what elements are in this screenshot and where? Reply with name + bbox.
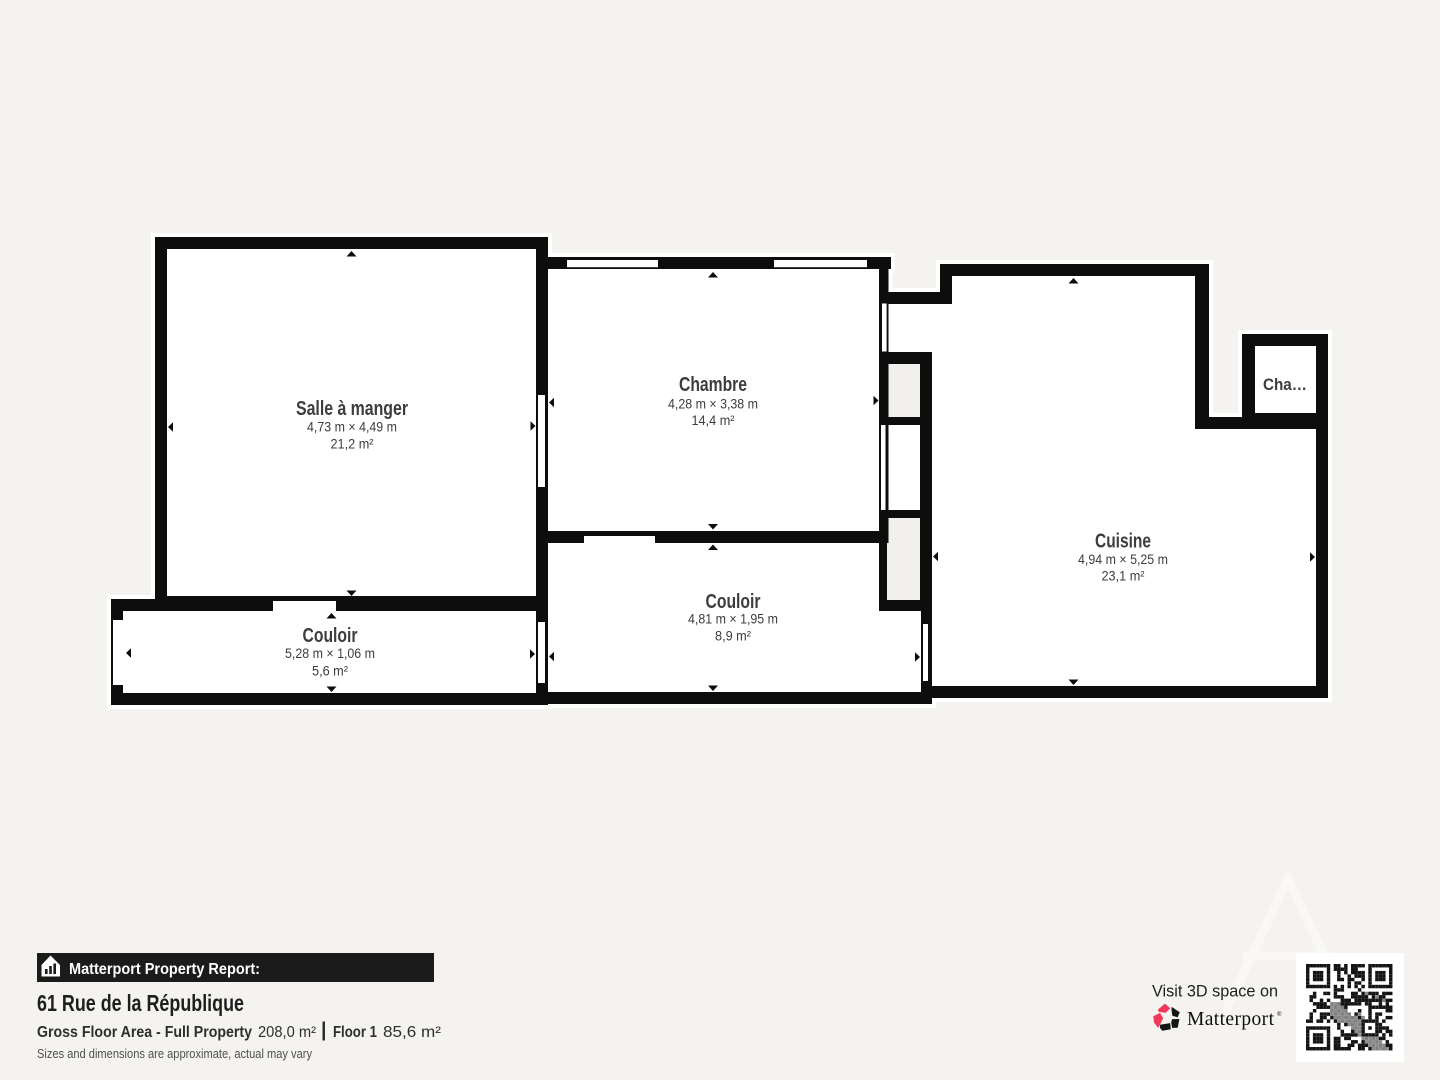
svg-text:Couloir: Couloir xyxy=(303,625,358,647)
svg-text:4,28 m × 3,38 m: 4,28 m × 3,38 m xyxy=(668,397,758,412)
svg-text:Chambre: Chambre xyxy=(679,374,747,396)
svg-text:4,94 m × 5,25 m: 4,94 m × 5,25 m xyxy=(1078,552,1168,567)
svg-text:61 Rue de la République: 61 Rue de la République xyxy=(37,990,244,1016)
svg-text:Sizes and dimensions are appro: Sizes and dimensions are approximate, ac… xyxy=(37,1047,313,1061)
svg-text:Visit 3D space on: Visit 3D space on xyxy=(1152,982,1278,1001)
svg-text:Couloir: Couloir xyxy=(706,591,761,613)
svg-text:5,6 m²: 5,6 m² xyxy=(312,664,348,679)
svg-text:Cuisine: Cuisine xyxy=(1095,531,1151,553)
svg-text:®: ® xyxy=(1277,1011,1282,1018)
svg-text:85,6 m²: 85,6 m² xyxy=(383,1024,441,1041)
svg-text:23,1 m²: 23,1 m² xyxy=(1102,569,1145,584)
svg-text:208,0 m²: 208,0 m² xyxy=(258,1024,316,1041)
svg-text:Gross Floor Area - Full Proper: Gross Floor Area - Full Property xyxy=(37,1024,252,1041)
svg-text:Matterport: Matterport xyxy=(1187,1009,1275,1030)
svg-text:21,2 m²: 21,2 m² xyxy=(331,437,374,452)
svg-text:4,73 m × 4,49 m: 4,73 m × 4,49 m xyxy=(307,420,397,435)
svg-text:Cha…: Cha… xyxy=(1263,375,1307,394)
svg-text:5,28 m × 1,06 m: 5,28 m × 1,06 m xyxy=(285,646,375,661)
svg-text:8,9 m²: 8,9 m² xyxy=(715,629,751,644)
svg-text:Matterport Property Report:: Matterport Property Report: xyxy=(69,961,260,978)
svg-text:14,4 m²: 14,4 m² xyxy=(692,413,735,428)
svg-text:4,81 m × 1,95 m: 4,81 m × 1,95 m xyxy=(688,612,778,627)
svg-text:Salle à manger: Salle à manger xyxy=(296,398,408,420)
svg-text:Floor 1: Floor 1 xyxy=(333,1024,377,1041)
